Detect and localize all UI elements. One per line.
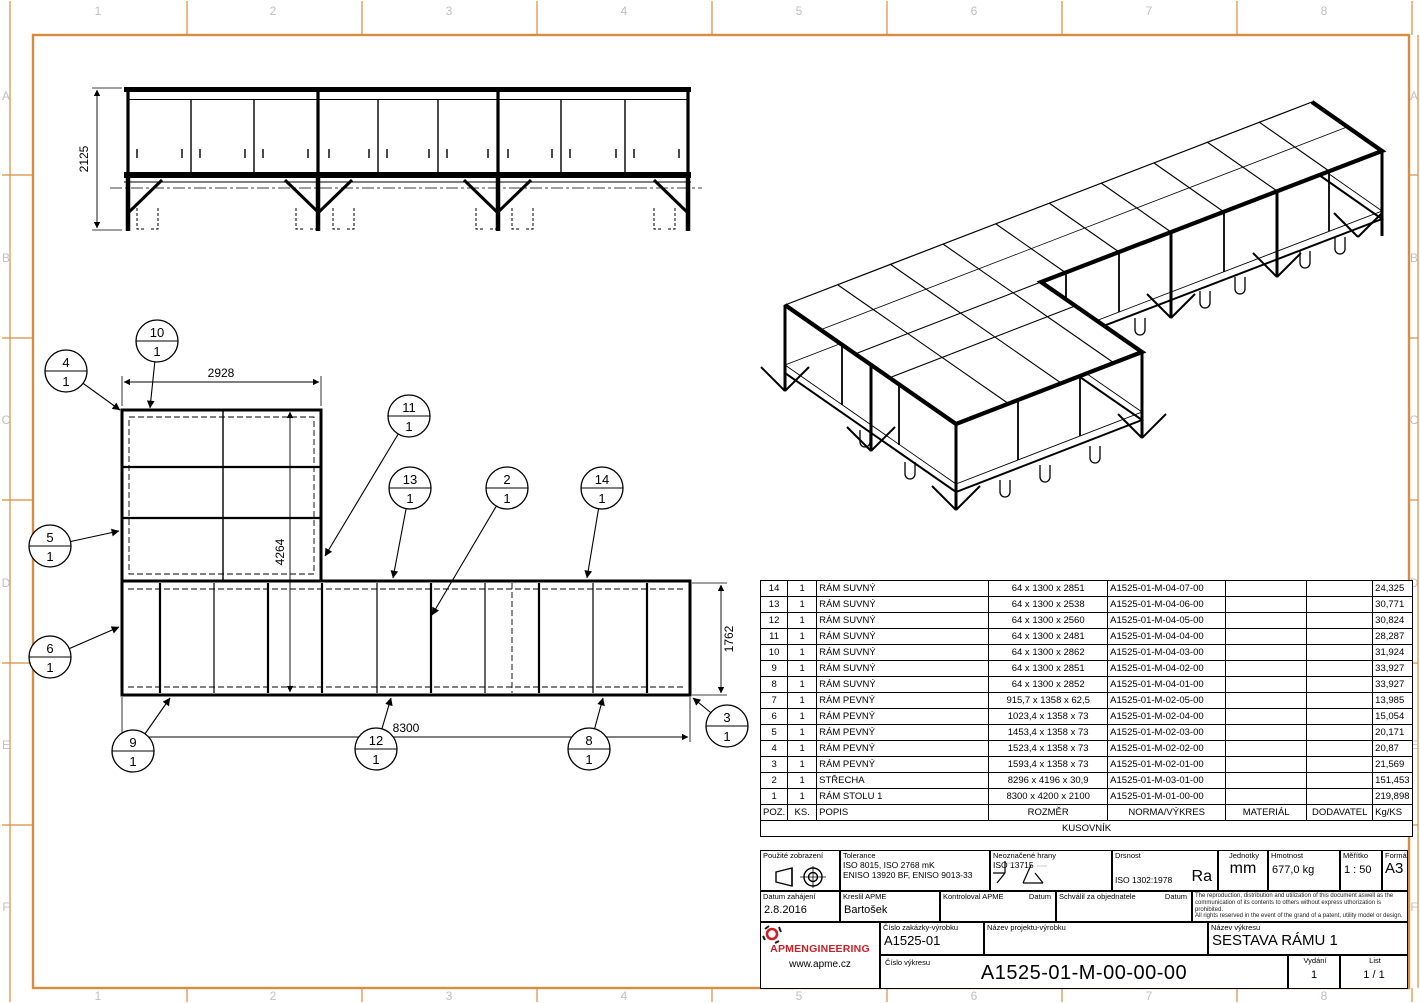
- company-logo-cell: APMENGINEERING www.apme.cz: [760, 922, 880, 989]
- tolerance-cell: Tolerance ISO 8015, ISO 2768 mK ENISO 13…: [840, 850, 990, 891]
- isometric-view: [761, 102, 1382, 510]
- zone-col-label: 5: [791, 4, 807, 18]
- roughness-value: ISO 1302:1978: [1115, 875, 1172, 885]
- drawing-number-cell: Číslo výkresu A1525-01-M-00-00-00: [880, 955, 1288, 989]
- table-row: 131RÁM SUVNÝ64 x 1300 x 2538A1525-01-M-0…: [761, 597, 1413, 613]
- start-date-label: Datum zahájení: [761, 892, 839, 901]
- sheet-number-label: List: [1341, 956, 1407, 965]
- tolerance-line2: ENISO 13920 BF, ENISO 9013-33: [841, 870, 989, 880]
- svg-text:1: 1: [153, 344, 160, 359]
- drawn-by-cell: Kreslil APME Bartošek: [840, 891, 940, 922]
- svg-text:1: 1: [46, 660, 53, 675]
- copyright-line3: All rights reserved in the event of the …: [1195, 913, 1405, 920]
- zone-col-label: 8: [1316, 4, 1332, 18]
- balloon-4: 41: [45, 350, 120, 410]
- svg-text:1: 1: [406, 491, 413, 506]
- svg-text:11: 11: [402, 400, 416, 415]
- balloon-12: 121: [355, 698, 397, 770]
- plan-view: 2928 4264 1762 8300 101 41 111 131 21 14…: [29, 320, 748, 772]
- projection-cell: Použité zobrazení: [760, 850, 840, 891]
- front-view: 2125: [77, 87, 702, 231]
- scale-label: Měřítko: [1341, 851, 1381, 860]
- scale-cell: Měřítko 1 : 50: [1340, 850, 1382, 891]
- table-row: 31RÁM PEVNÝ1593,4 x 1358 x 73A1525-01-M-…: [761, 757, 1413, 773]
- project-name-cell: Název projektu-výrobku: [984, 922, 1208, 955]
- latch-ticks: [137, 149, 679, 158]
- order-number-label: Číslo zakázky-výrobku: [881, 923, 983, 932]
- zone-row-label: B: [1406, 251, 1420, 265]
- svg-text:3: 3: [723, 710, 730, 725]
- drawing-sheet: 2125: [0, 0, 1420, 1003]
- checked-date-label: Datum: [1027, 892, 1051, 921]
- front-dim-2125: 2125: [77, 88, 122, 230]
- parts-list-title: KUSOVNÍK: [761, 821, 1413, 837]
- table-row: 21STŘECHA8296 x 4196 x 30,9A1525-01-M-03…: [761, 773, 1413, 789]
- drawn-by-label: Kreslil APME: [841, 892, 939, 901]
- format-cell: Formát A3: [1382, 850, 1408, 891]
- table-row: 91RÁM SUVNÝ64 x 1300 x 2851A1525-01-M-04…: [761, 661, 1413, 677]
- roughness-cell: Drsnost ISO 1302:1978 Ra: [1112, 850, 1218, 891]
- start-date-value: 2.8.2016: [761, 904, 839, 916]
- zone-col-label: 7: [1141, 4, 1157, 18]
- balloon-9: 91: [112, 698, 170, 772]
- dim-label-2928: 2928: [208, 366, 235, 380]
- svg-text:1: 1: [723, 729, 730, 744]
- scale-value: 1 : 50: [1341, 864, 1381, 876]
- weight-value: 677,0 kg: [1269, 864, 1339, 876]
- svg-text:1: 1: [503, 491, 510, 506]
- table-row: 71RÁM PEVNÝ915,7 x 1358 x 62,5A1525-01-M…: [761, 693, 1413, 709]
- balloon-5: 51: [29, 525, 119, 567]
- start-date-cell: Datum zahájení 2.8.2016: [760, 891, 840, 922]
- revision-cell: Vydání 1: [1288, 955, 1340, 989]
- table-caption-row: KUSOVNÍK: [761, 821, 1413, 837]
- zone-col-label: 1: [90, 4, 106, 18]
- logo-icon: [761, 923, 783, 945]
- projection-symbol-icon: [773, 866, 829, 888]
- svg-text:2: 2: [503, 472, 510, 487]
- zone-col-label: 2: [265, 989, 281, 1003]
- order-number-cell: Číslo zakázky-výrobku A1525-01: [880, 922, 984, 955]
- svg-text:13: 13: [403, 472, 417, 487]
- svg-text:6: 6: [46, 641, 53, 656]
- zone-col-label: 3: [441, 989, 457, 1003]
- table-row: 51RÁM PEVNÝ1453,4 x 1358 x 73A1525-01-M-…: [761, 725, 1413, 741]
- revision-value: 1: [1311, 969, 1317, 981]
- table-row: 101RÁM SUVNÝ64 x 1300 x 2862A1525-01-M-0…: [761, 645, 1413, 661]
- svg-text:4: 4: [62, 355, 69, 370]
- roughness-symbol: Ra: [1192, 868, 1212, 886]
- table-row: 81RÁM SUVNÝ64 x 1300 x 2852A1525-01-M-04…: [761, 677, 1413, 693]
- svg-text:5: 5: [46, 530, 53, 545]
- logo-url: www.apme.cz: [789, 959, 851, 970]
- balloon-10: 101: [136, 320, 178, 408]
- format-label: Formát: [1383, 851, 1407, 860]
- tolerance-label: Tolerance: [841, 851, 989, 860]
- balloon-13: 131: [389, 467, 431, 578]
- balloons: 101 41 111 131 21 141 51 61 91 121 81 31: [29, 320, 748, 772]
- zone-row-label: E: [0, 738, 14, 752]
- dim-label-2125: 2125: [77, 145, 91, 172]
- units-label: Jednotky: [1219, 851, 1267, 860]
- table-row: 61RÁM PEVNÝ1023,4 x 1358 x 73A1525-01-M-…: [761, 709, 1413, 725]
- svg-text:8: 8: [585, 733, 592, 748]
- svg-text:1: 1: [585, 752, 592, 767]
- logo-text: APMENGINEERING: [770, 943, 870, 955]
- svg-text:1: 1: [598, 491, 605, 506]
- copyright-line1: The reproduction, distribution and utili…: [1195, 893, 1405, 900]
- zone-row-label: A: [0, 89, 14, 103]
- zone-row-label: F: [1406, 900, 1420, 914]
- balloon-14: 141: [581, 467, 623, 578]
- svg-text:14: 14: [595, 472, 609, 487]
- drawing-number-label: Číslo výkresu: [883, 958, 930, 967]
- edges-cell: Neoznačené hrany ISO 13715: [990, 850, 1112, 891]
- dim-label-1762: 1762: [722, 625, 736, 652]
- zone-row-label: B: [0, 251, 14, 265]
- table-row: 141RÁM SUVNÝ64 x 1300 x 2851A1525-01-M-0…: [761, 581, 1413, 597]
- svg-text:1: 1: [46, 549, 53, 564]
- table-row: 121RÁM SUVNÝ64 x 1300 x 2560A1525-01-M-0…: [761, 613, 1413, 629]
- weight-label: Hmotnost: [1269, 851, 1339, 860]
- company-logo: APMENGINEERING www.apme.cz: [761, 923, 879, 988]
- zone-row-label: A: [1406, 89, 1420, 103]
- zone-col-label: 6: [966, 989, 982, 1003]
- balloon-8: 81: [568, 698, 610, 770]
- table-row: 111RÁM SUVNÝ64 x 1300 x 2481A1525-01-M-0…: [761, 629, 1413, 645]
- zone-col-label: 2: [265, 4, 281, 18]
- format-value: A3: [1383, 860, 1407, 877]
- roughness-label: Drsnost: [1113, 851, 1217, 860]
- zone-col-label: 7: [1141, 989, 1157, 1003]
- checked-by-label: Kontroloval APME: [941, 892, 1003, 921]
- copyright-line2: communication of its contents to others …: [1195, 900, 1405, 914]
- table-row: 11RÁM STOLU 18300 x 4200 x 2100A1525-01-…: [761, 789, 1413, 805]
- table-header-row: POZ.KS.POPISROZMĚRNORMA/VÝKRESMATERIÁLDO…: [761, 805, 1413, 821]
- zone-col-label: 8: [1316, 989, 1332, 1003]
- zone-row-label: C: [1406, 413, 1420, 427]
- approved-by-label: Schválil za objednatele: [1057, 892, 1136, 921]
- zone-col-label: 4: [616, 4, 632, 18]
- drawing-name-value: SESTAVA RÁMU 1: [1209, 932, 1338, 949]
- revision-label: Vydání: [1289, 956, 1339, 965]
- zone-row-label: D: [0, 576, 14, 590]
- zone-col-label: 3: [441, 4, 457, 18]
- project-name-label: Název projektu-výrobku: [985, 923, 1207, 932]
- table-row: 41RÁM PEVNÝ1523,4 x 1358 x 73A1525-01-M-…: [761, 741, 1413, 757]
- foot-brackets: [137, 208, 675, 229]
- edge-symbols-icon: [991, 859, 1051, 889]
- svg-text:9: 9: [129, 735, 136, 750]
- zone-col-label: 6: [966, 4, 982, 18]
- parts-list-table: 141RÁM SUVNÝ64 x 1300 x 2851A1525-01-M-0…: [760, 580, 1413, 837]
- units-value: mm: [1230, 860, 1257, 877]
- title-block: Použité zobrazení Tolerance ISO 8015, IS…: [760, 850, 1408, 989]
- approved-date-label: Datum: [1163, 892, 1187, 921]
- svg-text:1: 1: [405, 419, 412, 434]
- drawing-name-cell: Název výkresu SESTAVA RÁMU 1: [1208, 922, 1408, 955]
- drawn-by-value: Bartošek: [841, 904, 939, 916]
- checked-by-cell: Kontroloval APME Datum: [940, 891, 1056, 922]
- balloon-2: 21: [432, 467, 528, 615]
- zone-col-label: 1: [90, 989, 106, 1003]
- dim-label-4264: 4264: [273, 538, 287, 565]
- copyright-cell: The reproduction, distribution and utili…: [1192, 891, 1408, 922]
- drawing-name-label: Název výkresu: [1209, 923, 1407, 932]
- svg-text:12: 12: [369, 733, 383, 748]
- zone-row-label: F: [0, 900, 14, 914]
- projection-label: Použité zobrazení: [761, 851, 839, 860]
- svg-text:10: 10: [150, 325, 164, 340]
- approved-by-cell: Schválil za objednatele Datum: [1056, 891, 1192, 922]
- zone-col-label: 5: [791, 989, 807, 1003]
- units-cell: Jednotky mm: [1218, 850, 1268, 891]
- svg-text:1: 1: [129, 754, 136, 769]
- weight-cell: Hmotnost 677,0 kg: [1268, 850, 1340, 891]
- svg-text:1: 1: [62, 374, 69, 389]
- drawing-number-value: A1525-01-M-00-00-00: [881, 962, 1287, 985]
- tolerance-line1: ISO 8015, ISO 2768 mK: [841, 860, 989, 870]
- sheet-number-cell: List 1 / 1: [1340, 955, 1408, 989]
- zone-col-label: 4: [616, 989, 632, 1003]
- order-number-value: A1525-01: [881, 933, 940, 948]
- sheet-number-value: 1 / 1: [1363, 969, 1384, 981]
- balloon-3: 31: [693, 698, 748, 747]
- dim-label-8300: 8300: [393, 721, 420, 735]
- svg-text:1: 1: [372, 752, 379, 767]
- zone-row-label: C: [0, 413, 14, 427]
- balloon-6: 61: [29, 627, 119, 678]
